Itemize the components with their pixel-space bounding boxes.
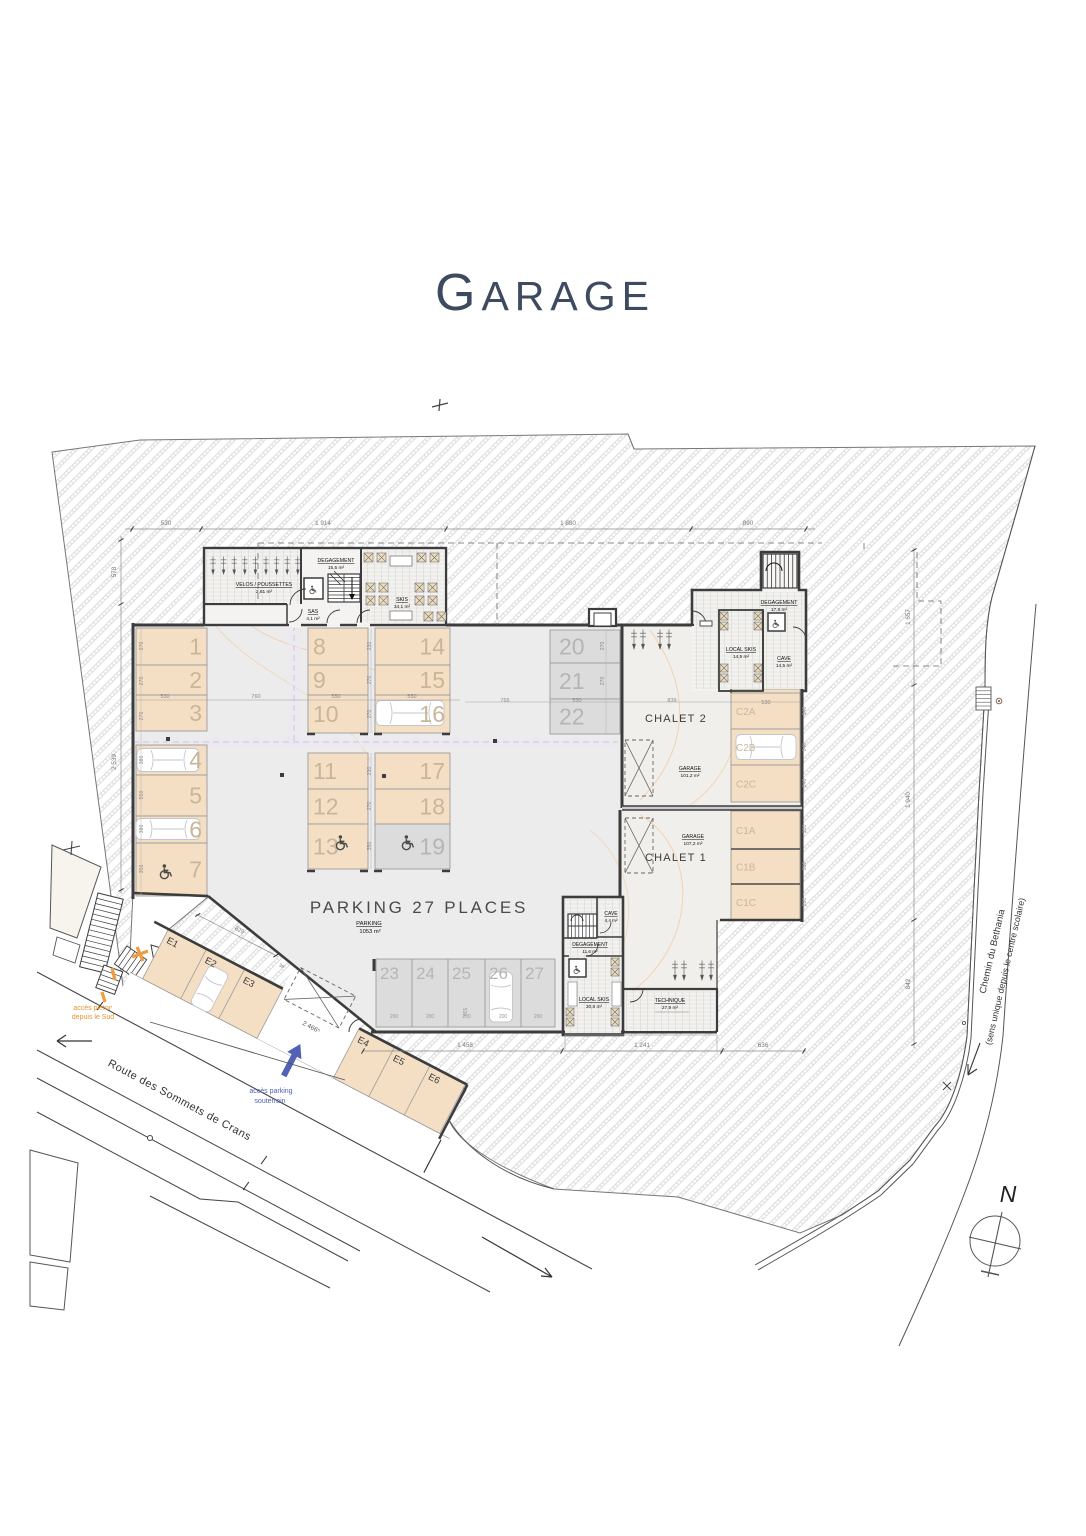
svg-text:LOCAL SKIS: LOCAL SKIS [579, 997, 610, 1003]
svg-text:270: 270 [600, 642, 606, 651]
svg-text:DEGAGEMENT: DEGAGEMENT [572, 942, 608, 948]
svg-text:34,1 m²: 34,1 m² [394, 604, 411, 610]
svg-text:200: 200 [390, 1014, 399, 1020]
svg-text:SKIS: SKIS [396, 597, 408, 603]
svg-text:DEGAGEMENT: DEGAGEMENT [761, 600, 799, 606]
svg-text:1 880: 1 880 [560, 520, 576, 527]
svg-text:765: 765 [500, 698, 509, 704]
svg-text:27: 27 [525, 964, 544, 983]
svg-text:SAS: SAS [308, 609, 319, 615]
svg-text:PARKING 27 PLACES: PARKING 27 PLACES [310, 898, 528, 917]
svg-text:890: 890 [743, 520, 754, 527]
svg-text:350: 350 [367, 842, 373, 851]
svg-text:VELOS / POUSSETTES: VELOS / POUSSETTES [236, 582, 293, 588]
svg-text:GARAGE: GARAGE [435, 264, 655, 322]
svg-text:DEGAGEMENT: DEGAGEMENT [318, 558, 356, 564]
svg-text:24: 24 [416, 964, 435, 983]
svg-text:16: 16 [419, 701, 445, 727]
svg-text:CHALET 1: CHALET 1 [645, 852, 707, 864]
svg-text:380: 380 [139, 825, 145, 834]
svg-text:TECHNIQUE: TECHNIQUE [655, 998, 686, 1004]
svg-text:23: 23 [380, 964, 399, 983]
svg-text:15: 15 [419, 667, 445, 693]
svg-text:240: 240 [802, 779, 808, 788]
svg-text:380: 380 [139, 756, 145, 765]
svg-text:CAVE: CAVE [604, 911, 618, 917]
svg-text:200: 200 [426, 1014, 435, 1020]
svg-text:270: 270 [367, 710, 373, 719]
svg-text:2: 2 [189, 667, 202, 693]
svg-text:530: 530 [160, 694, 169, 700]
svg-text:C2A: C2A [736, 707, 756, 718]
svg-text:GARAGE: GARAGE [682, 834, 705, 840]
svg-text:N: N [1000, 1181, 1017, 1207]
svg-text:230: 230 [367, 642, 373, 651]
svg-text:280: 280 [802, 862, 808, 871]
svg-text:5: 5 [189, 783, 202, 809]
svg-text:842: 842 [905, 978, 912, 989]
svg-text:PARKING: PARKING [356, 921, 382, 927]
svg-text:6: 6 [189, 817, 202, 843]
svg-text:10: 10 [313, 701, 339, 727]
svg-text:530: 530 [461, 1008, 467, 1017]
svg-text:230: 230 [367, 767, 373, 776]
svg-text:17,9 m²: 17,9 m² [771, 607, 788, 613]
svg-text:200: 200 [499, 1014, 508, 1020]
svg-text:20: 20 [559, 634, 585, 660]
svg-text:21: 21 [559, 668, 585, 694]
svg-text:LOCAL SKIS: LOCAL SKIS [726, 647, 757, 653]
svg-text:15,5 m²: 15,5 m² [328, 565, 345, 571]
svg-text:3: 3 [189, 700, 202, 726]
svg-text:300: 300 [802, 825, 808, 834]
svg-text:CAVE: CAVE [777, 656, 791, 662]
svg-text:18: 18 [419, 794, 445, 820]
svg-text:530: 530 [572, 698, 581, 704]
svg-text:GARAGE: GARAGE [679, 766, 702, 772]
svg-text:C1C: C1C [736, 898, 756, 909]
svg-text:C1A: C1A [736, 826, 756, 837]
svg-text:550: 550 [407, 694, 416, 700]
svg-text:1 657: 1 657 [905, 609, 912, 625]
svg-text:C2C: C2C [736, 780, 756, 791]
svg-text:839: 839 [667, 698, 676, 704]
svg-text:550: 550 [139, 791, 145, 800]
svg-text:13: 13 [313, 834, 339, 860]
svg-text:11: 11 [313, 758, 337, 784]
svg-text:107,2 m²: 107,2 m² [684, 841, 703, 847]
svg-text:1: 1 [189, 634, 202, 660]
svg-text:19: 19 [419, 834, 445, 860]
svg-text:8: 8 [313, 634, 326, 660]
svg-text:636: 636 [758, 1042, 769, 1049]
svg-text:270: 270 [367, 802, 373, 811]
svg-text:4,1 m²: 4,1 m² [306, 616, 320, 622]
svg-text:101,2 m²: 101,2 m² [681, 773, 700, 779]
svg-text:270: 270 [139, 677, 145, 686]
svg-text:C2B: C2B [736, 743, 756, 754]
svg-text:270: 270 [367, 676, 373, 685]
svg-text:14,5 m²: 14,5 m² [776, 663, 793, 669]
svg-text:1053 m²: 1053 m² [359, 929, 380, 935]
svg-text:4: 4 [189, 747, 202, 773]
svg-text:350: 350 [139, 865, 145, 874]
svg-text:760: 760 [251, 694, 260, 700]
svg-text:280: 280 [802, 898, 808, 907]
svg-text:200: 200 [534, 1014, 543, 1020]
svg-text:souterrain: souterrain [254, 1098, 285, 1105]
svg-text:270: 270 [600, 677, 606, 686]
svg-text:530: 530 [761, 700, 770, 706]
svg-text:accès parking: accès parking [249, 1088, 292, 1095]
svg-text:9: 9 [313, 667, 326, 693]
svg-text:12: 12 [313, 794, 339, 820]
svg-text:22: 22 [559, 704, 585, 730]
svg-text:14: 14 [419, 634, 445, 660]
svg-text:578: 578 [111, 566, 118, 577]
svg-text:7: 7 [189, 857, 202, 883]
svg-text:C1B: C1B [736, 863, 756, 874]
svg-text:CHALET 2: CHALET 2 [645, 713, 707, 725]
svg-text:26: 26 [489, 964, 508, 983]
svg-text:1 940: 1 940 [905, 792, 912, 808]
svg-text:1 458: 1 458 [457, 1042, 473, 1049]
svg-text:17: 17 [419, 758, 445, 784]
svg-text:270: 270 [139, 642, 145, 651]
svg-text:240: 240 [802, 743, 808, 752]
svg-text:240: 240 [802, 707, 808, 716]
svg-text:depuis le Sud: depuis le Sud [72, 1014, 115, 1021]
svg-text:accès piéton: accès piéton [73, 1005, 112, 1012]
svg-text:550: 550 [331, 694, 340, 700]
svg-text:27,9 m²: 27,9 m² [662, 1005, 679, 1011]
svg-text:1 241: 1 241 [634, 1042, 650, 1049]
svg-text:14,5 m²: 14,5 m² [733, 654, 750, 660]
svg-text:270: 270 [139, 712, 145, 721]
svg-text:25: 25 [452, 964, 471, 983]
svg-text:1 914: 1 914 [315, 520, 331, 527]
svg-text:2 539: 2 539 [111, 754, 118, 770]
svg-text:530: 530 [161, 520, 172, 527]
svg-text:30,8 m²: 30,8 m² [586, 1004, 603, 1010]
